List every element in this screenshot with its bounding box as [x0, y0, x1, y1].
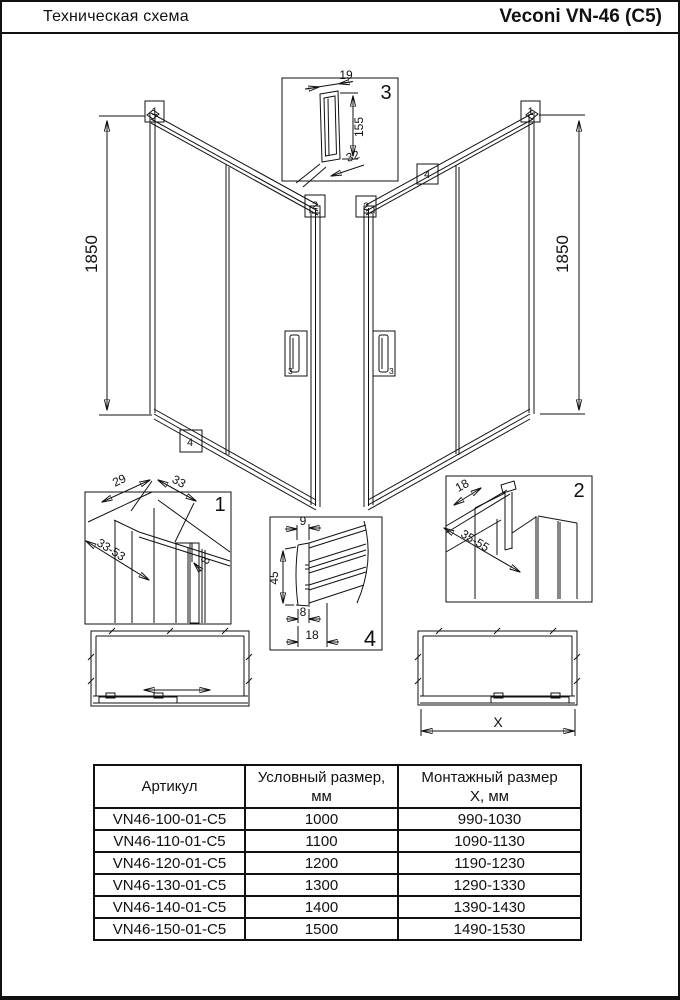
table-row: VN46-100-01-C5 1000 990-1030	[94, 808, 581, 830]
detail-3-number: 3	[380, 82, 391, 104]
size-table: Артикул Условный размер, мм Монтажный ра…	[93, 764, 582, 941]
mounting-size-line2: Х, мм	[470, 788, 509, 805]
dim-155: 155	[352, 117, 366, 137]
table-row: VN46-130-01-C5 1300 1290-1330	[94, 874, 581, 896]
col-header-mounting-size: Монтажный размер Х, мм	[398, 765, 581, 808]
table-header-row: Артикул Условный размер, мм Монтажный ра…	[94, 765, 581, 808]
table-row: VN46-110-01-C5 1100 1090-1130	[94, 830, 581, 852]
mounting-size-cell: 1190-1230	[398, 852, 581, 874]
mounting-width-dim: X	[493, 714, 503, 730]
col-header-nominal-size: Условный размер, мм	[245, 765, 398, 808]
article-cell: VN46-130-01-C5	[94, 874, 245, 896]
marker-2: 2	[312, 200, 318, 212]
detail-2-number: 2	[573, 480, 584, 502]
dim-33-53: 33-53	[94, 536, 128, 564]
col-header-article-label: Артикул	[142, 778, 198, 795]
handle-marker-label: 3	[288, 366, 293, 376]
mounting-size-cell: 1390-1430	[398, 896, 581, 918]
article-cell: VN46-110-01-C5	[94, 830, 245, 852]
mounting-size-cell: 1090-1130	[398, 830, 581, 852]
mounting-size-cell: 990-1030	[398, 808, 581, 830]
nominal-size-cell: 1400	[245, 896, 398, 918]
marker-4: 4	[187, 437, 193, 449]
technical-scheme-page: Техническая схема Veconi VN-46 (C5)	[0, 0, 680, 1000]
marker-1: 1	[151, 106, 157, 118]
right-shower-view: 3 1850 1 2 4	[356, 101, 585, 510]
table-row: VN46-150-01-C5 1500 1490-1530	[94, 918, 581, 940]
table-row: VN46-120-01-C5 1200 1190-1230	[94, 852, 581, 874]
marker-4: 4	[424, 169, 430, 181]
nominal-size-cell: 1200	[245, 852, 398, 874]
left-shower-view: 3 1850 1 2 4	[82, 101, 325, 510]
nominal-size-cell: 1000	[245, 808, 398, 830]
dim-29: 29	[110, 471, 128, 490]
top-view-right: X	[415, 628, 580, 736]
article-cell: VN46-150-01-C5	[94, 918, 245, 940]
nominal-size-line2: мм	[311, 788, 332, 805]
dim-9: 9	[300, 514, 307, 528]
mounting-size-cell: 1290-1330	[398, 874, 581, 896]
marker-2: 2	[363, 201, 369, 213]
nominal-size-line1: Условный размер,	[258, 769, 385, 786]
detail-1-profile: 1 29 33 33-53	[85, 471, 231, 624]
dim-19: 19	[339, 68, 353, 82]
dim-18: 18	[305, 628, 319, 642]
detail-2-profile: 2 18 35-55	[444, 476, 592, 602]
dim-18: 18	[453, 476, 472, 495]
handle-marker-label: 3	[389, 366, 394, 376]
article-cell: VN46-100-01-C5	[94, 808, 245, 830]
left-height-dim: 1850	[82, 235, 101, 273]
mounting-size-cell: 1490-1530	[398, 918, 581, 940]
dim-45: 45	[267, 571, 281, 585]
detail-1-number: 1	[214, 494, 225, 516]
nominal-size-cell: 1500	[245, 918, 398, 940]
detail-4-profile: 4 9 45	[267, 514, 382, 651]
detail-3-handle: 3 19 155 32	[282, 68, 398, 187]
dim-8: 8	[300, 605, 307, 619]
top-view-left	[88, 628, 252, 706]
table-row: VN46-140-01-C5 1400 1390-1430	[94, 896, 581, 918]
article-cell: VN46-120-01-C5	[94, 852, 245, 874]
mounting-size-line1: Монтажный размер	[421, 769, 557, 786]
dim-32: 32	[344, 147, 361, 165]
marker-1: 1	[527, 106, 533, 118]
nominal-size-cell: 1300	[245, 874, 398, 896]
nominal-size-cell: 1100	[245, 830, 398, 852]
right-height-dim: 1850	[553, 235, 572, 273]
col-header-article: Артикул	[94, 765, 245, 808]
detail-4-number: 4	[364, 626, 376, 651]
article-cell: VN46-140-01-C5	[94, 896, 245, 918]
